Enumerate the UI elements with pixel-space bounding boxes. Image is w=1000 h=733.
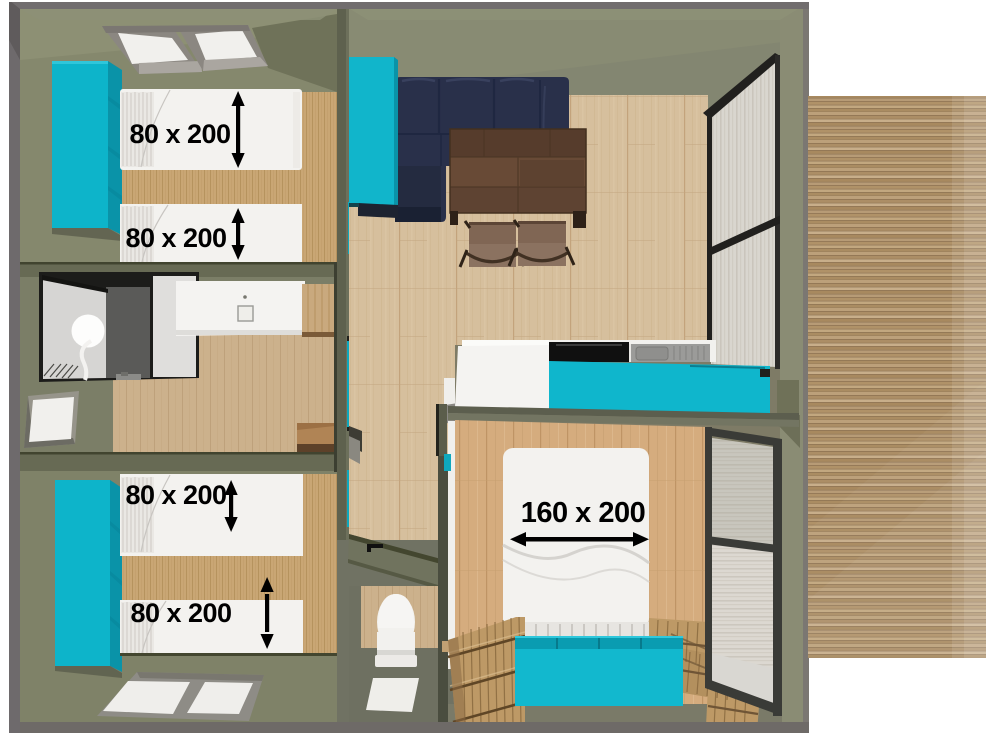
svg-text:80 x 200: 80 x 200: [125, 480, 226, 510]
svg-text:80 x 200: 80 x 200: [130, 598, 231, 628]
svg-text:80 x 200: 80 x 200: [129, 119, 230, 149]
svg-text:160 x 200: 160 x 200: [521, 497, 646, 529]
svg-text:80 x 200: 80 x 200: [125, 223, 226, 253]
